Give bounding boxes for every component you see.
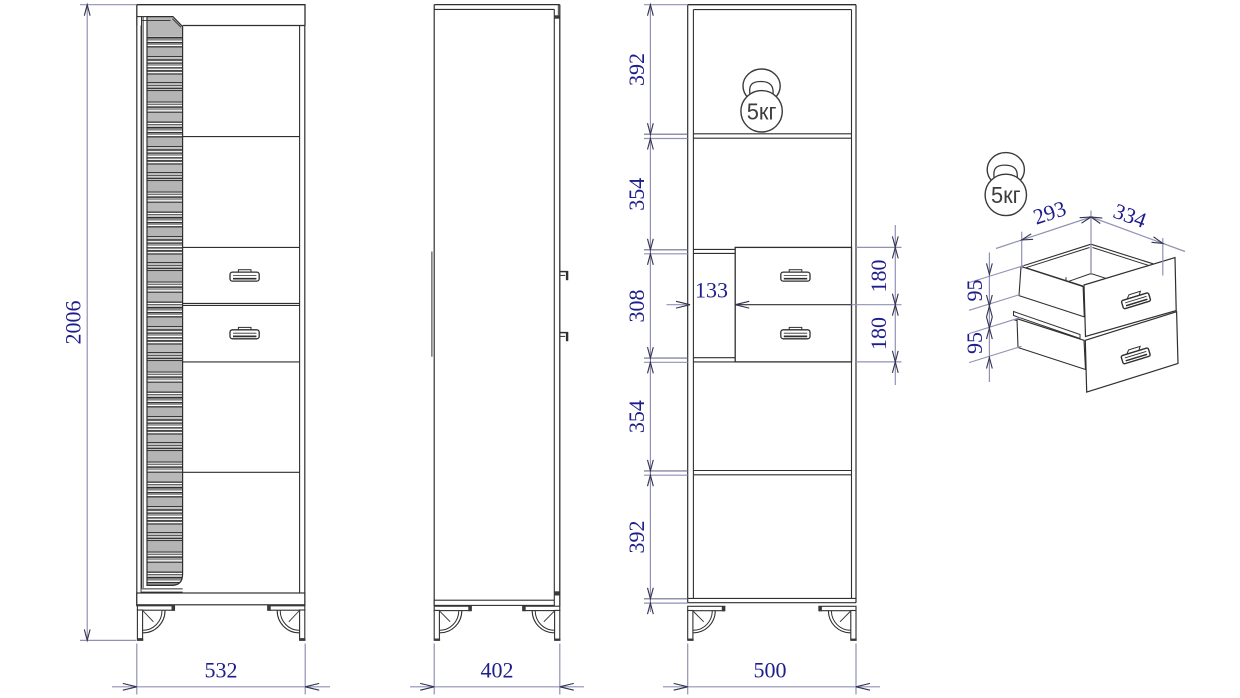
svg-text:180: 180 (866, 260, 891, 293)
svg-text:402: 402 (481, 658, 514, 683)
svg-text:500: 500 (754, 658, 787, 683)
svg-text:532: 532 (205, 658, 238, 683)
svg-text:95: 95 (962, 280, 987, 302)
svg-text:5кг: 5кг (991, 183, 1021, 209)
svg-text:133: 133 (695, 278, 728, 303)
svg-text:392: 392 (624, 521, 649, 554)
svg-text:392: 392 (624, 53, 649, 86)
svg-text:2006: 2006 (61, 301, 86, 345)
svg-text:180: 180 (866, 317, 891, 350)
svg-text:95: 95 (962, 332, 987, 354)
svg-text:354: 354 (624, 178, 649, 211)
svg-text:308: 308 (624, 290, 649, 323)
svg-text:5кг: 5кг (747, 99, 777, 125)
svg-text:354: 354 (624, 400, 649, 433)
